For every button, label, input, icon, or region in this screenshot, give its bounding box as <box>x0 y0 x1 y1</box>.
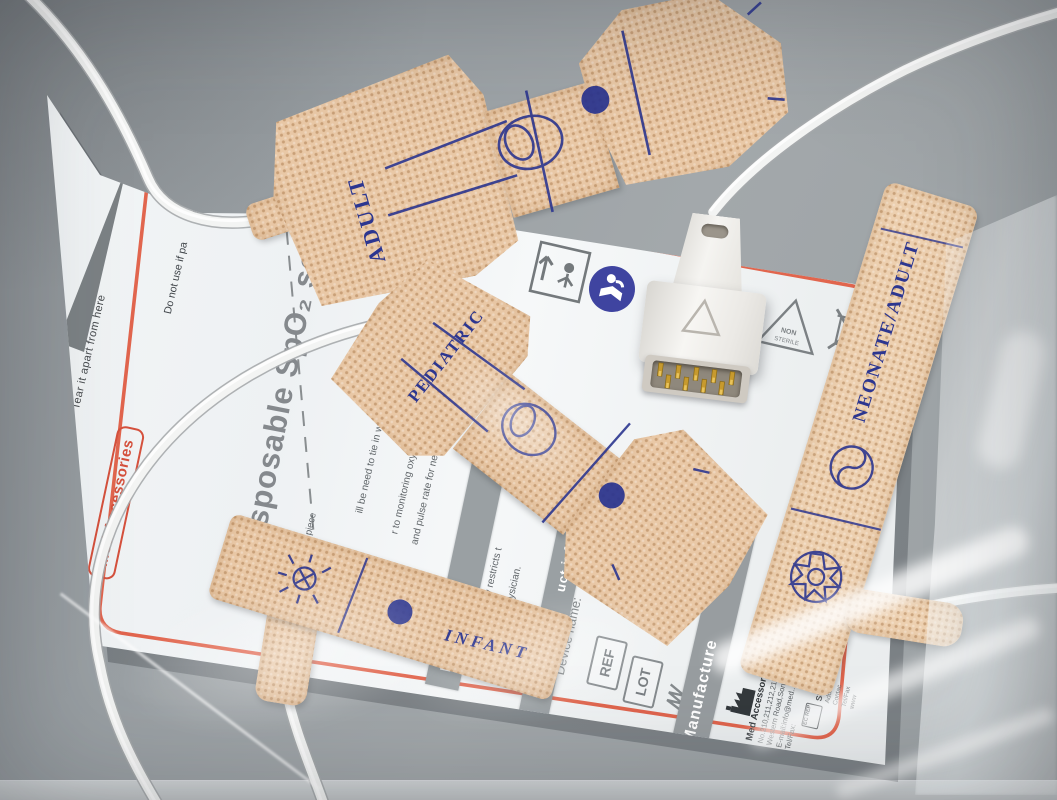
sensor-dot <box>578 83 613 118</box>
sensor-dot <box>384 596 415 627</box>
star-icon <box>785 546 847 608</box>
divider-line <box>518 91 560 212</box>
cable-connector <box>629 208 781 407</box>
product-photo: NON STERILE Tear it apart <box>0 0 1057 800</box>
divider-line <box>338 556 367 634</box>
yinyang-icon <box>825 441 877 493</box>
connector-pins <box>629 208 781 407</box>
sun-icon <box>271 547 333 610</box>
divider-line <box>615 31 658 155</box>
sensor-dot <box>593 477 629 513</box>
divider-line <box>791 503 881 536</box>
